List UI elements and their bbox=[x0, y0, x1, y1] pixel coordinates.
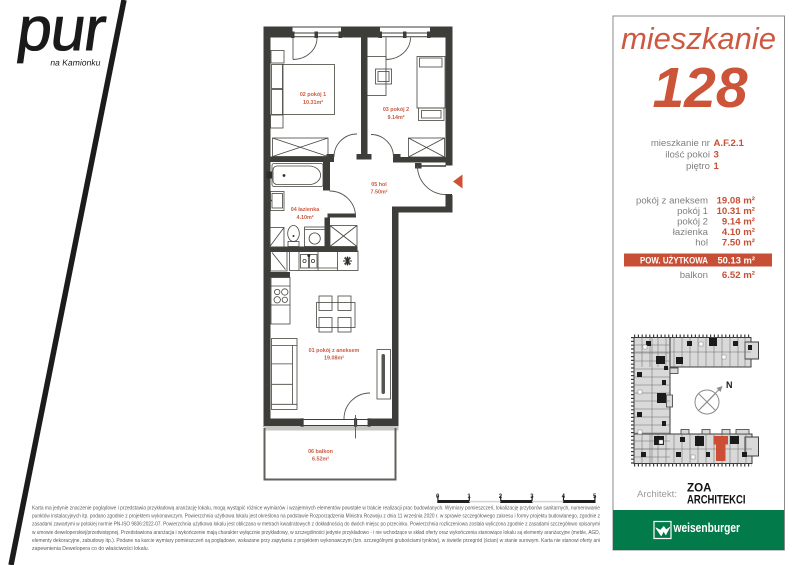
svg-text:7.50 m²: 7.50 m² bbox=[722, 238, 755, 249]
svg-text:4.10 m²: 4.10 m² bbox=[722, 227, 755, 238]
svg-text:02 pokój 1: 02 pokój 1 bbox=[300, 92, 326, 98]
svg-text:elementy dekoracyjne, zabudowy: elementy dekoracyjne, zabudowy itp.). Po… bbox=[32, 538, 600, 544]
svg-text:na Kamionku: na Kamionku bbox=[50, 58, 102, 68]
svg-text:Architekt:: Architekt: bbox=[637, 489, 677, 500]
svg-text:10.31m²: 10.31m² bbox=[303, 100, 323, 106]
svg-text:pur: pur bbox=[13, 0, 110, 64]
svg-text:3: 3 bbox=[714, 150, 719, 161]
svg-text:10.31 m²: 10.31 m² bbox=[717, 206, 755, 217]
svg-text:łazienka: łazienka bbox=[673, 227, 709, 238]
svg-text:1: 1 bbox=[714, 161, 720, 172]
svg-text:punktów instalacyjnych itp. po: punktów instalacyjnych itp. podano zgodn… bbox=[32, 514, 600, 520]
svg-text:9.14 m²: 9.14 m² bbox=[722, 217, 755, 228]
svg-text:50.13 m²: 50.13 m² bbox=[717, 254, 755, 265]
svg-text:9.14m²: 9.14m² bbox=[387, 115, 404, 121]
svg-text:A.F.2.1: A.F.2.1 bbox=[714, 138, 745, 149]
svg-text:04 łazienka: 04 łazienka bbox=[291, 207, 320, 213]
svg-text:mieszkanie nr: mieszkanie nr bbox=[651, 138, 711, 149]
svg-text:06 balkon: 06 balkon bbox=[308, 449, 333, 455]
svg-text:6.52 m²: 6.52 m² bbox=[722, 270, 755, 281]
svg-text:N: N bbox=[726, 380, 733, 390]
svg-text:05 hol: 05 hol bbox=[371, 182, 387, 188]
svg-text:weisenburger: weisenburger bbox=[673, 520, 740, 535]
svg-text:zasadami zawartymi w polskiej: zasadami zawartymi w polskiej normie PN-… bbox=[32, 522, 600, 528]
svg-text:POW. UŻYTKOWA: POW. UŻYTKOWA bbox=[640, 254, 708, 265]
svg-text:ilość pokoi: ilość pokoi bbox=[665, 150, 710, 161]
svg-text:128: 128 bbox=[652, 56, 747, 120]
svg-text:19.08 m²: 19.08 m² bbox=[717, 196, 755, 207]
svg-text:pokój 2: pokój 2 bbox=[677, 217, 708, 228]
svg-text:7.50m²: 7.50m² bbox=[370, 190, 387, 196]
svg-text:hol: hol bbox=[695, 238, 708, 249]
svg-text:zapewnienia Dewelopera co do w: zapewnienia Dewelopera co do właściwości… bbox=[32, 546, 149, 552]
svg-text:balkon: balkon bbox=[680, 270, 708, 281]
svg-text:mieszkanie: mieszkanie bbox=[621, 21, 776, 56]
svg-text:ZOA: ZOA bbox=[687, 483, 712, 495]
svg-text:03 pokój 2: 03 pokój 2 bbox=[383, 107, 409, 113]
svg-text:piętro: piętro bbox=[686, 161, 710, 172]
svg-text:w umowie deweloperskiej/przedw: w umowie deweloperskiej/przedwstępnej. P… bbox=[32, 530, 600, 536]
svg-text:pokój 1: pokój 1 bbox=[677, 206, 708, 217]
svg-text:Karta ma jedynie znaczenie pog: Karta ma jedynie znaczenie poglądowe i p… bbox=[32, 506, 600, 512]
svg-text:ARCHITEKCI: ARCHITEKCI bbox=[687, 495, 746, 507]
svg-text:19.08m²: 19.08m² bbox=[324, 356, 344, 362]
svg-text:01 pokój z aneksem: 01 pokój z aneksem bbox=[309, 348, 360, 354]
svg-text:4.10m²: 4.10m² bbox=[296, 215, 313, 221]
svg-text:6.52m²: 6.52m² bbox=[312, 457, 329, 463]
svg-text:pokój z aneksem: pokój z aneksem bbox=[636, 196, 708, 207]
